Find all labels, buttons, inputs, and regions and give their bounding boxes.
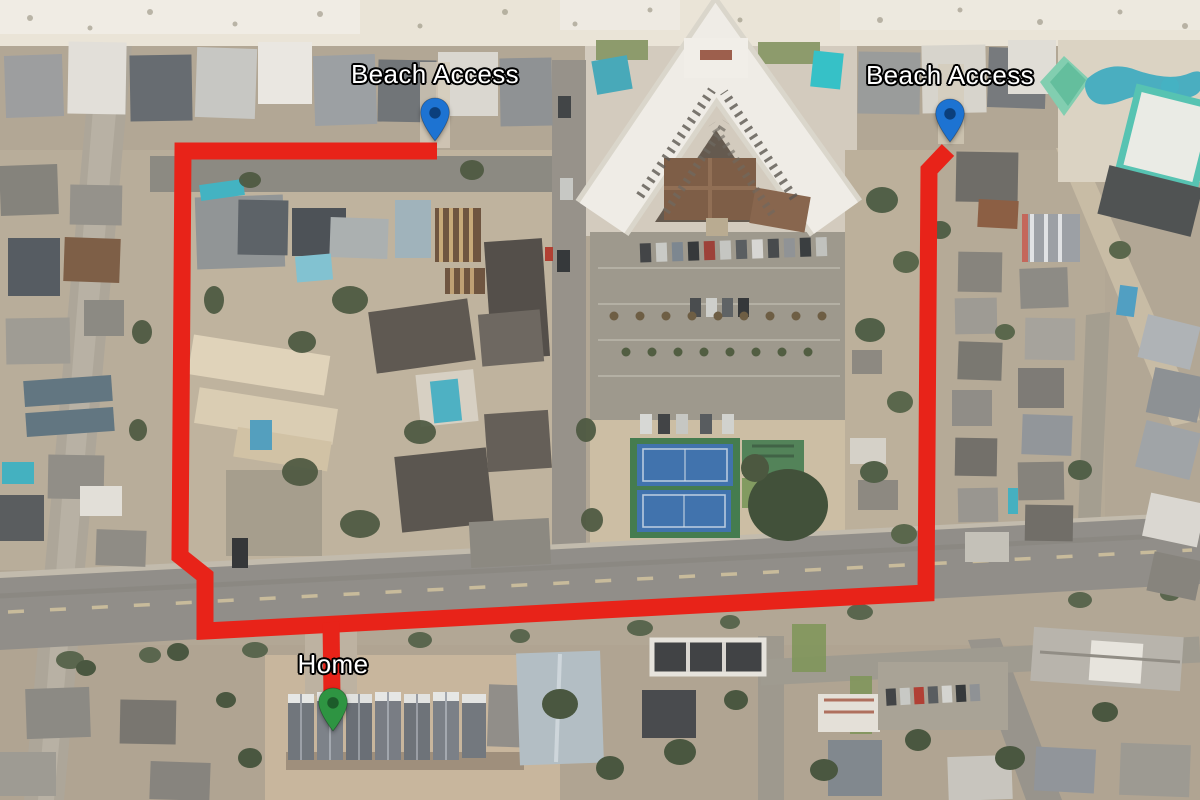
map-pin-icon <box>935 98 966 143</box>
marker-label: Home <box>298 649 369 680</box>
satellite-imagery <box>0 0 1200 800</box>
marker-label: Beach Access <box>866 60 1034 91</box>
marker-label: Beach Access <box>351 59 519 90</box>
map-pin-icon <box>420 97 451 142</box>
map-pin-icon <box>318 687 349 732</box>
map-screenshot: Beach Access Beach Access Home <box>0 0 1200 800</box>
